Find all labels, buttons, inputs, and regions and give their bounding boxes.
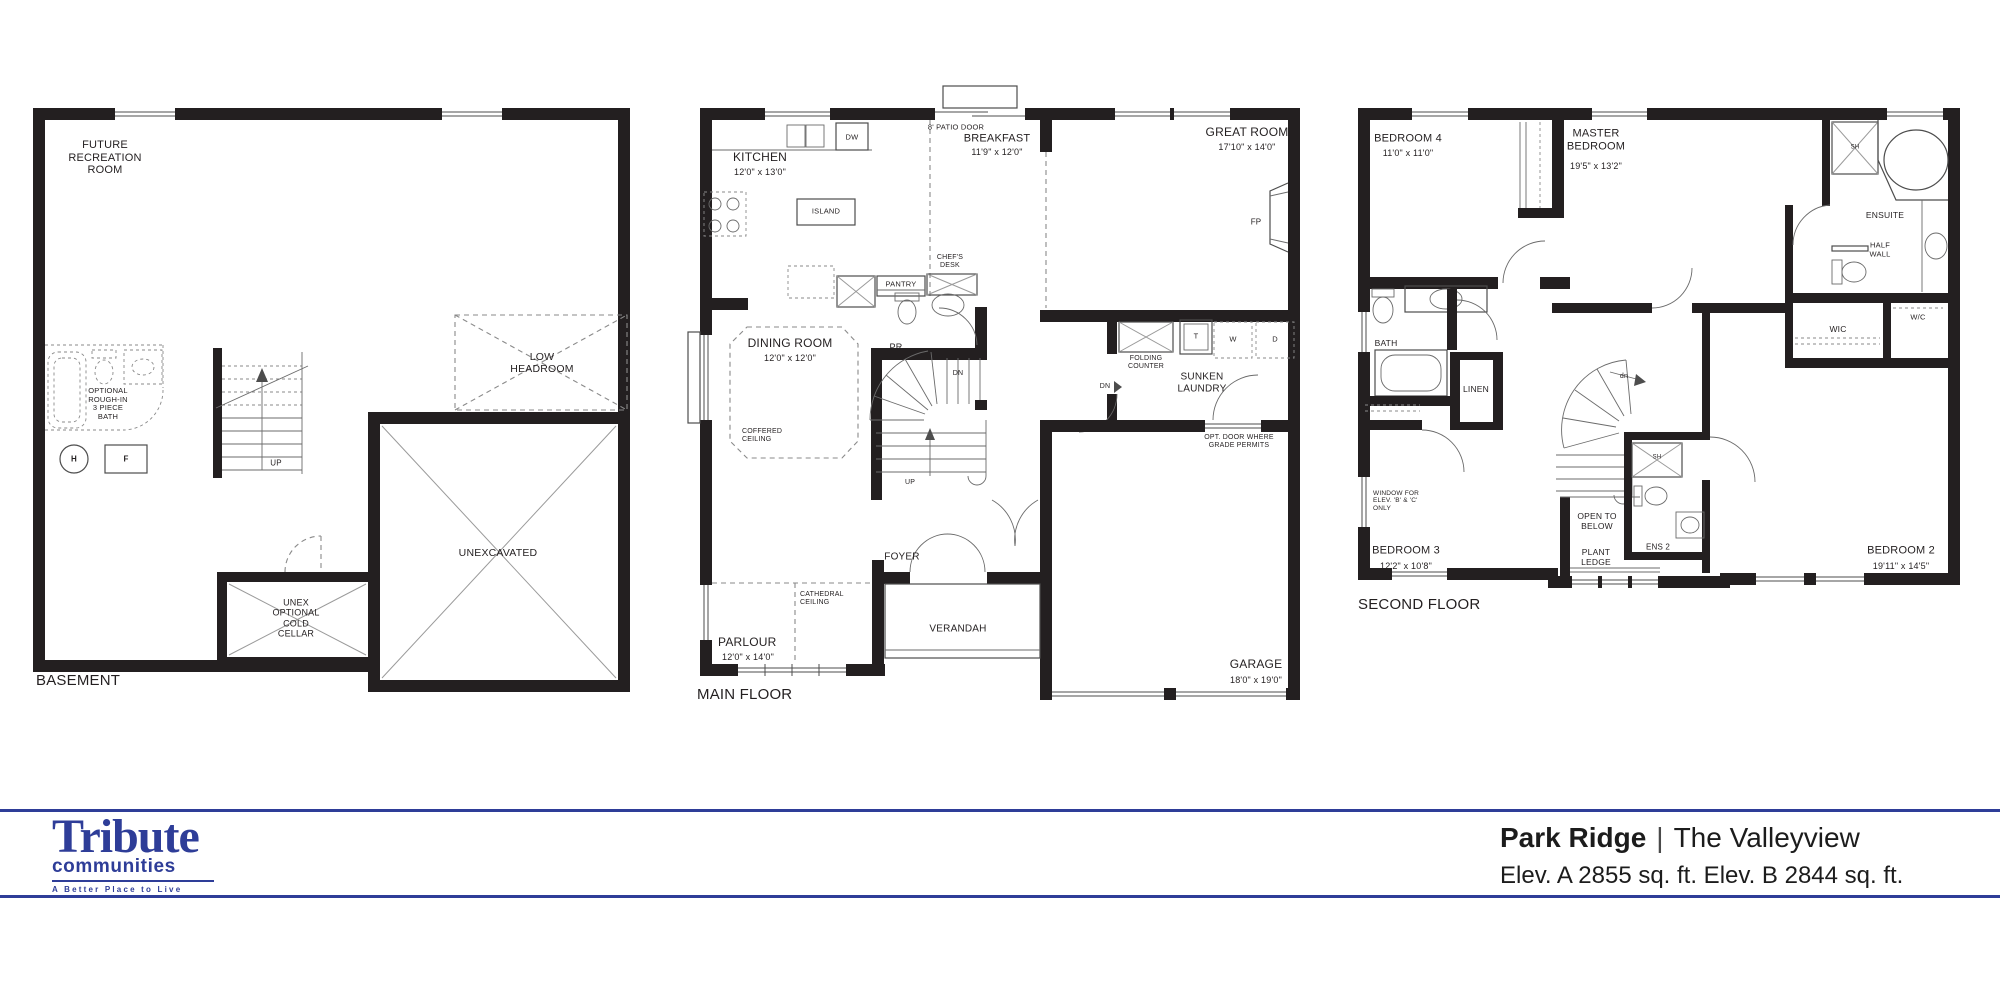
floorplan-brochure-page: FUTURE RECREATION ROOMOPTIONAL ROUGH-IN … bbox=[0, 0, 2000, 1000]
powder-room bbox=[871, 293, 987, 360]
sunken-laundry bbox=[1040, 310, 1300, 432]
tribute-wordmark: Tribute bbox=[52, 814, 214, 860]
unexcavated-area bbox=[368, 412, 630, 692]
great-room-window bbox=[1115, 108, 1230, 120]
elevation-sizes: Elev. A 2855 sq. ft. Elev. B 2844 sq. ft… bbox=[1500, 862, 1903, 890]
furnace-icon bbox=[105, 445, 147, 473]
garage bbox=[1040, 375, 1300, 700]
tribute-logo: Tribute communities A Better Place to Li… bbox=[52, 814, 214, 894]
plan-name: Park Ridge bbox=[1500, 822, 1646, 853]
dishwasher-icon bbox=[836, 123, 868, 150]
footer-top-rule bbox=[0, 809, 2000, 812]
plan-identification: Park Ridge|The Valleyview Elev. A 2855 s… bbox=[1500, 822, 1903, 890]
basement-plan bbox=[33, 108, 630, 692]
water-heater-icon bbox=[60, 445, 88, 473]
island-icon bbox=[797, 199, 855, 225]
main-stairs bbox=[870, 351, 987, 500]
fridge-icon bbox=[788, 266, 834, 298]
kitchen-window bbox=[765, 108, 830, 120]
plan-title: Park Ridge|The Valleyview bbox=[1500, 822, 1903, 854]
half-wall-icon bbox=[1832, 246, 1868, 251]
tribute-logo-rule bbox=[52, 880, 214, 882]
bedroom4-walls bbox=[1358, 108, 1570, 289]
second-floor-plan bbox=[1358, 108, 1960, 588]
footer-bottom-rule bbox=[0, 895, 2000, 898]
foyer-front-door bbox=[872, 500, 1040, 584]
bedroom3-walls bbox=[1358, 405, 1464, 472]
main-floor-plan bbox=[688, 86, 1300, 700]
bathtub-icon bbox=[1375, 350, 1447, 396]
basement-stairs bbox=[213, 348, 308, 478]
model-name: The Valleyview bbox=[1674, 822, 1860, 853]
second-floor-windows bbox=[1358, 108, 1943, 588]
plan-title-separator: | bbox=[1656, 822, 1663, 853]
ensuite-tub-icon bbox=[1884, 130, 1948, 190]
linen-closet bbox=[1450, 300, 1503, 430]
fireplace-icon bbox=[1270, 183, 1288, 252]
kitchen-fixtures bbox=[704, 120, 930, 298]
verandah bbox=[885, 584, 1040, 658]
washer-icon bbox=[1214, 322, 1252, 358]
tribute-tagline: A Better Place to Live bbox=[52, 885, 214, 894]
ensuite2 bbox=[1624, 432, 1710, 560]
cold-cellar bbox=[217, 536, 378, 667]
parlour-bay-window bbox=[738, 664, 846, 676]
open-to-below bbox=[1560, 497, 1660, 580]
master-closets bbox=[1785, 293, 1948, 368]
optional-bath-rough-in bbox=[45, 345, 163, 430]
dining-coffered-ceiling bbox=[730, 327, 858, 458]
pantry-row bbox=[837, 274, 977, 307]
bedroom2-walls bbox=[1702, 313, 1755, 573]
laundry-tub-icon bbox=[1180, 320, 1212, 354]
ensuite bbox=[1785, 120, 1948, 303]
low-headroom-area bbox=[455, 315, 627, 410]
ensuite-sink-icon bbox=[1925, 233, 1947, 259]
patio-door bbox=[935, 86, 1025, 120]
master-walls bbox=[1552, 268, 1788, 313]
dining-bay-window bbox=[688, 332, 712, 423]
parlour-side-window bbox=[700, 585, 712, 640]
second-floor-bath bbox=[1358, 286, 1487, 406]
